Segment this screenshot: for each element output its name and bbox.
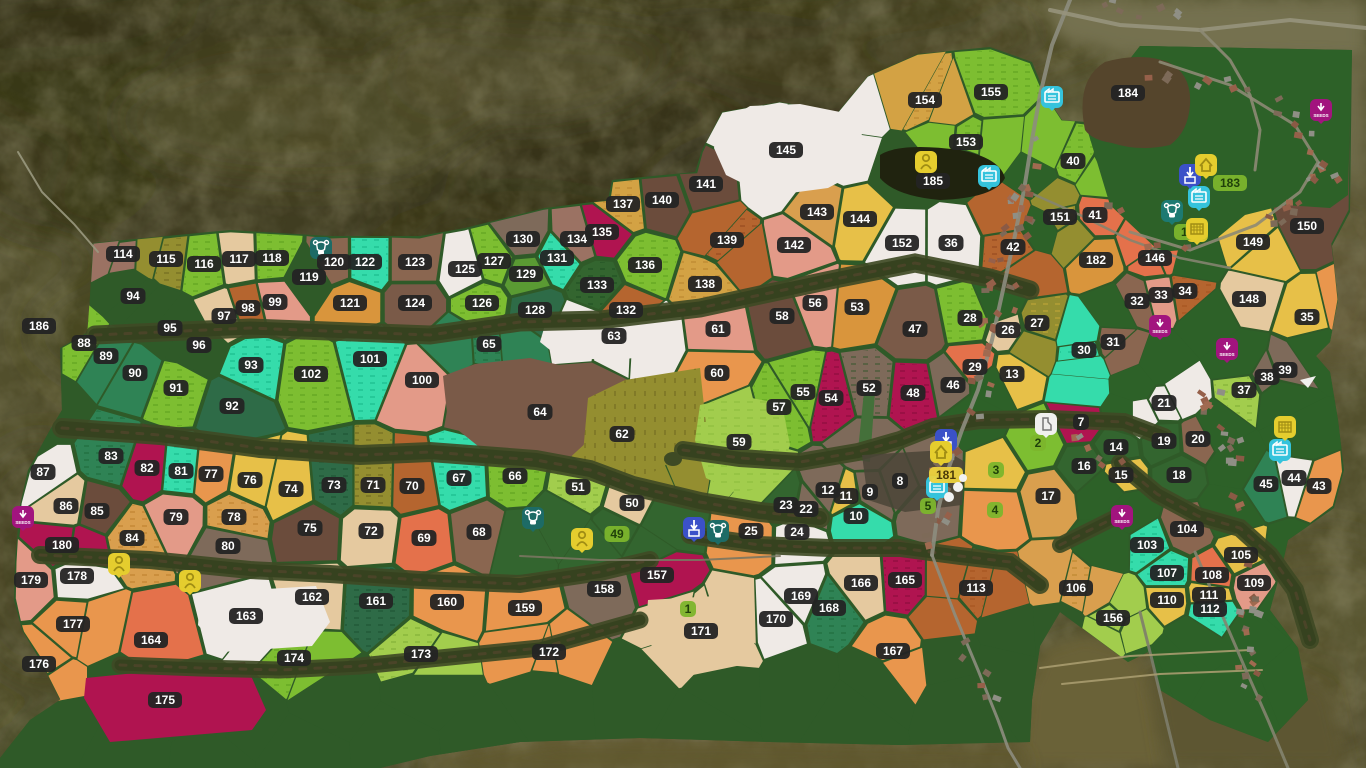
svg-text:73: 73 — [327, 478, 341, 492]
svg-text:22: 22 — [799, 502, 813, 516]
svg-text:175: 175 — [155, 693, 175, 707]
svg-text:92: 92 — [225, 399, 239, 413]
svg-text:120: 120 — [324, 255, 344, 269]
svg-text:148: 148 — [1239, 292, 1259, 306]
svg-text:131: 131 — [547, 251, 567, 265]
svg-text:185: 185 — [923, 174, 943, 188]
svg-text:129: 129 — [516, 267, 536, 281]
svg-text:155: 155 — [981, 85, 1001, 99]
svg-text:143: 143 — [807, 205, 827, 219]
svg-text:126: 126 — [472, 296, 492, 310]
svg-text:37: 37 — [1237, 383, 1251, 397]
svg-text:76: 76 — [243, 473, 257, 487]
svg-text:SEEDS: SEEDS — [1219, 352, 1234, 357]
svg-text:177: 177 — [63, 617, 83, 631]
svg-text:103: 103 — [1137, 538, 1157, 552]
svg-text:35: 35 — [1300, 310, 1314, 324]
svg-text:85: 85 — [90, 504, 104, 518]
svg-text:45: 45 — [1259, 477, 1273, 491]
svg-text:93: 93 — [244, 358, 258, 372]
svg-text:156: 156 — [1103, 611, 1123, 625]
svg-text:82: 82 — [140, 461, 154, 475]
svg-text:184: 184 — [1118, 86, 1138, 100]
svg-text:151: 151 — [1050, 210, 1070, 224]
svg-text:21: 21 — [1157, 396, 1171, 410]
svg-text:173: 173 — [411, 647, 431, 661]
svg-text:137: 137 — [613, 197, 633, 211]
svg-text:86: 86 — [59, 499, 73, 513]
svg-text:135: 135 — [592, 225, 612, 239]
svg-text:136: 136 — [635, 258, 655, 272]
svg-text:169: 169 — [791, 589, 811, 603]
svg-text:8: 8 — [897, 474, 904, 488]
svg-text:49: 49 — [610, 527, 624, 541]
svg-text:133: 133 — [587, 278, 607, 292]
svg-text:139: 139 — [717, 233, 737, 247]
svg-text:146: 146 — [1145, 251, 1165, 265]
svg-text:168: 168 — [819, 601, 839, 615]
svg-text:77: 77 — [204, 467, 218, 481]
svg-text:98: 98 — [241, 301, 255, 315]
svg-text:150: 150 — [1297, 219, 1317, 233]
svg-text:44: 44 — [1287, 471, 1301, 485]
svg-text:97: 97 — [217, 309, 231, 323]
svg-text:29: 29 — [968, 360, 982, 374]
svg-text:14: 14 — [1109, 440, 1123, 454]
svg-text:68: 68 — [472, 525, 486, 539]
svg-text:140: 140 — [652, 193, 672, 207]
svg-text:107: 107 — [1157, 566, 1177, 580]
svg-text:134: 134 — [567, 232, 587, 246]
svg-text:95: 95 — [163, 321, 177, 335]
svg-text:63: 63 — [607, 329, 621, 343]
svg-text:2: 2 — [1035, 436, 1042, 450]
svg-text:164: 164 — [141, 633, 161, 647]
svg-text:1: 1 — [685, 602, 692, 616]
svg-text:30: 30 — [1077, 343, 1091, 357]
svg-text:154: 154 — [915, 93, 935, 107]
svg-text:24: 24 — [790, 525, 804, 539]
svg-text:40: 40 — [1066, 154, 1080, 168]
svg-text:141: 141 — [696, 177, 716, 191]
svg-text:36: 36 — [944, 236, 958, 250]
svg-text:102: 102 — [301, 367, 321, 381]
svg-text:67: 67 — [452, 471, 466, 485]
svg-text:99: 99 — [268, 295, 282, 309]
svg-text:SEEDS: SEEDS — [1114, 519, 1129, 524]
svg-text:70: 70 — [405, 479, 419, 493]
svg-text:91: 91 — [169, 381, 183, 395]
svg-text:83: 83 — [104, 449, 118, 463]
svg-text:149: 149 — [1243, 235, 1263, 249]
svg-text:161: 161 — [366, 594, 386, 608]
svg-text:72: 72 — [364, 524, 378, 538]
svg-text:171: 171 — [691, 624, 711, 638]
svg-text:89: 89 — [99, 349, 113, 363]
svg-text:132: 132 — [616, 303, 636, 317]
svg-text:121: 121 — [340, 296, 360, 310]
svg-text:87: 87 — [36, 465, 50, 479]
svg-text:41: 41 — [1088, 208, 1102, 222]
svg-text:166: 166 — [851, 576, 871, 590]
svg-text:18: 18 — [1172, 468, 1186, 482]
svg-text:111: 111 — [1200, 588, 1219, 602]
svg-text:SEEDS: SEEDS — [15, 520, 30, 525]
svg-text:113: 113 — [966, 581, 986, 595]
svg-text:122: 122 — [355, 255, 375, 269]
svg-text:13: 13 — [1005, 367, 1019, 381]
svg-text:106: 106 — [1066, 581, 1086, 595]
svg-text:4: 4 — [992, 503, 999, 517]
svg-text:65: 65 — [482, 337, 496, 351]
svg-text:90: 90 — [128, 366, 142, 380]
svg-text:34: 34 — [1178, 284, 1192, 298]
svg-text:55: 55 — [796, 385, 810, 399]
svg-text:61: 61 — [711, 322, 725, 336]
svg-text:80: 80 — [221, 539, 235, 553]
svg-text:157: 157 — [647, 568, 667, 582]
svg-text:79: 79 — [169, 510, 183, 524]
svg-text:110: 110 — [1157, 593, 1177, 607]
svg-text:23: 23 — [779, 498, 793, 512]
svg-text:182: 182 — [1086, 253, 1106, 267]
svg-text:58: 58 — [775, 309, 789, 323]
svg-text:7: 7 — [1078, 415, 1085, 429]
svg-text:12: 12 — [821, 483, 835, 497]
svg-text:163: 163 — [236, 609, 256, 623]
svg-text:179: 179 — [21, 573, 41, 587]
svg-text:16: 16 — [1077, 459, 1091, 473]
svg-text:15: 15 — [1114, 468, 1128, 482]
svg-text:SEEDS: SEEDS — [1313, 113, 1328, 118]
svg-text:144: 144 — [850, 212, 870, 226]
svg-text:75: 75 — [303, 521, 317, 535]
svg-text:38: 38 — [1260, 370, 1274, 384]
svg-text:127: 127 — [484, 254, 504, 268]
svg-text:26: 26 — [1001, 323, 1015, 337]
svg-text:117: 117 — [229, 252, 249, 266]
svg-text:71: 71 — [366, 478, 380, 492]
svg-text:183: 183 — [1220, 176, 1240, 190]
svg-text:62: 62 — [615, 427, 629, 441]
svg-text:165: 165 — [895, 573, 915, 587]
svg-text:64: 64 — [533, 405, 547, 419]
svg-text:5: 5 — [925, 499, 932, 513]
svg-text:25: 25 — [744, 524, 758, 538]
svg-text:46: 46 — [946, 378, 960, 392]
svg-text:81: 81 — [174, 464, 188, 478]
svg-text:78: 78 — [227, 510, 241, 524]
svg-text:181: 181 — [936, 468, 956, 482]
svg-text:11: 11 — [840, 489, 853, 503]
svg-text:119: 119 — [299, 270, 319, 284]
svg-text:138: 138 — [695, 277, 715, 291]
svg-text:96: 96 — [192, 338, 206, 352]
svg-text:128: 128 — [525, 303, 545, 317]
svg-text:84: 84 — [125, 531, 139, 545]
svg-text:130: 130 — [513, 232, 533, 246]
svg-text:17: 17 — [1041, 489, 1055, 503]
svg-text:170: 170 — [766, 612, 786, 626]
svg-text:88: 88 — [77, 336, 91, 350]
svg-text:54: 54 — [824, 391, 838, 405]
svg-text:39: 39 — [1278, 363, 1292, 377]
svg-text:53: 53 — [850, 300, 864, 314]
svg-text:158: 158 — [594, 582, 614, 596]
svg-text:109: 109 — [1244, 576, 1264, 590]
svg-text:27: 27 — [1030, 316, 1044, 330]
svg-text:56: 56 — [808, 296, 822, 310]
svg-text:33: 33 — [1154, 288, 1168, 302]
svg-text:176: 176 — [29, 657, 49, 671]
svg-text:160: 160 — [437, 595, 457, 609]
svg-text:94: 94 — [126, 289, 140, 303]
svg-text:108: 108 — [1202, 568, 1222, 582]
svg-text:123: 123 — [405, 255, 425, 269]
svg-text:142: 142 — [784, 238, 804, 252]
svg-text:167: 167 — [883, 644, 903, 658]
svg-text:43: 43 — [1312, 479, 1326, 493]
svg-text:112: 112 — [1200, 602, 1220, 616]
svg-text:115: 115 — [156, 252, 176, 266]
svg-text:172: 172 — [539, 645, 559, 659]
svg-text:186: 186 — [29, 319, 49, 333]
svg-text:153: 153 — [956, 135, 976, 149]
svg-text:125: 125 — [455, 262, 475, 276]
svg-text:51: 51 — [571, 480, 585, 494]
svg-text:159: 159 — [515, 601, 535, 615]
svg-text:20: 20 — [1191, 432, 1205, 446]
svg-text:31: 31 — [1106, 335, 1120, 349]
svg-text:105: 105 — [1231, 548, 1251, 562]
svg-text:101: 101 — [360, 352, 380, 366]
svg-text:57: 57 — [772, 400, 786, 414]
svg-text:178: 178 — [67, 569, 87, 583]
svg-text:145: 145 — [776, 143, 796, 157]
svg-text:28: 28 — [963, 311, 977, 325]
svg-text:SEEDS: SEEDS — [1152, 329, 1167, 334]
svg-text:114: 114 — [113, 247, 133, 261]
svg-text:10: 10 — [849, 509, 863, 523]
svg-text:60: 60 — [710, 366, 724, 380]
svg-text:152: 152 — [892, 236, 912, 250]
svg-text:3: 3 — [993, 463, 1000, 477]
svg-text:174: 174 — [284, 651, 304, 665]
svg-text:118: 118 — [262, 251, 282, 265]
svg-text:124: 124 — [405, 296, 425, 310]
svg-text:47: 47 — [908, 322, 922, 336]
svg-text:59: 59 — [732, 435, 746, 449]
svg-text:69: 69 — [417, 531, 431, 545]
svg-text:74: 74 — [284, 482, 298, 496]
svg-text:116: 116 — [194, 257, 214, 271]
svg-text:162: 162 — [302, 590, 322, 604]
svg-text:48: 48 — [906, 386, 920, 400]
svg-text:66: 66 — [508, 469, 522, 483]
svg-text:50: 50 — [625, 496, 639, 510]
svg-text:52: 52 — [862, 381, 876, 395]
svg-text:9: 9 — [867, 485, 874, 499]
svg-text:180: 180 — [52, 538, 72, 552]
svg-text:32: 32 — [1130, 294, 1144, 308]
svg-text:19: 19 — [1157, 434, 1171, 448]
svg-text:100: 100 — [412, 373, 432, 387]
svg-text:104: 104 — [1177, 522, 1197, 536]
svg-text:42: 42 — [1006, 240, 1020, 254]
